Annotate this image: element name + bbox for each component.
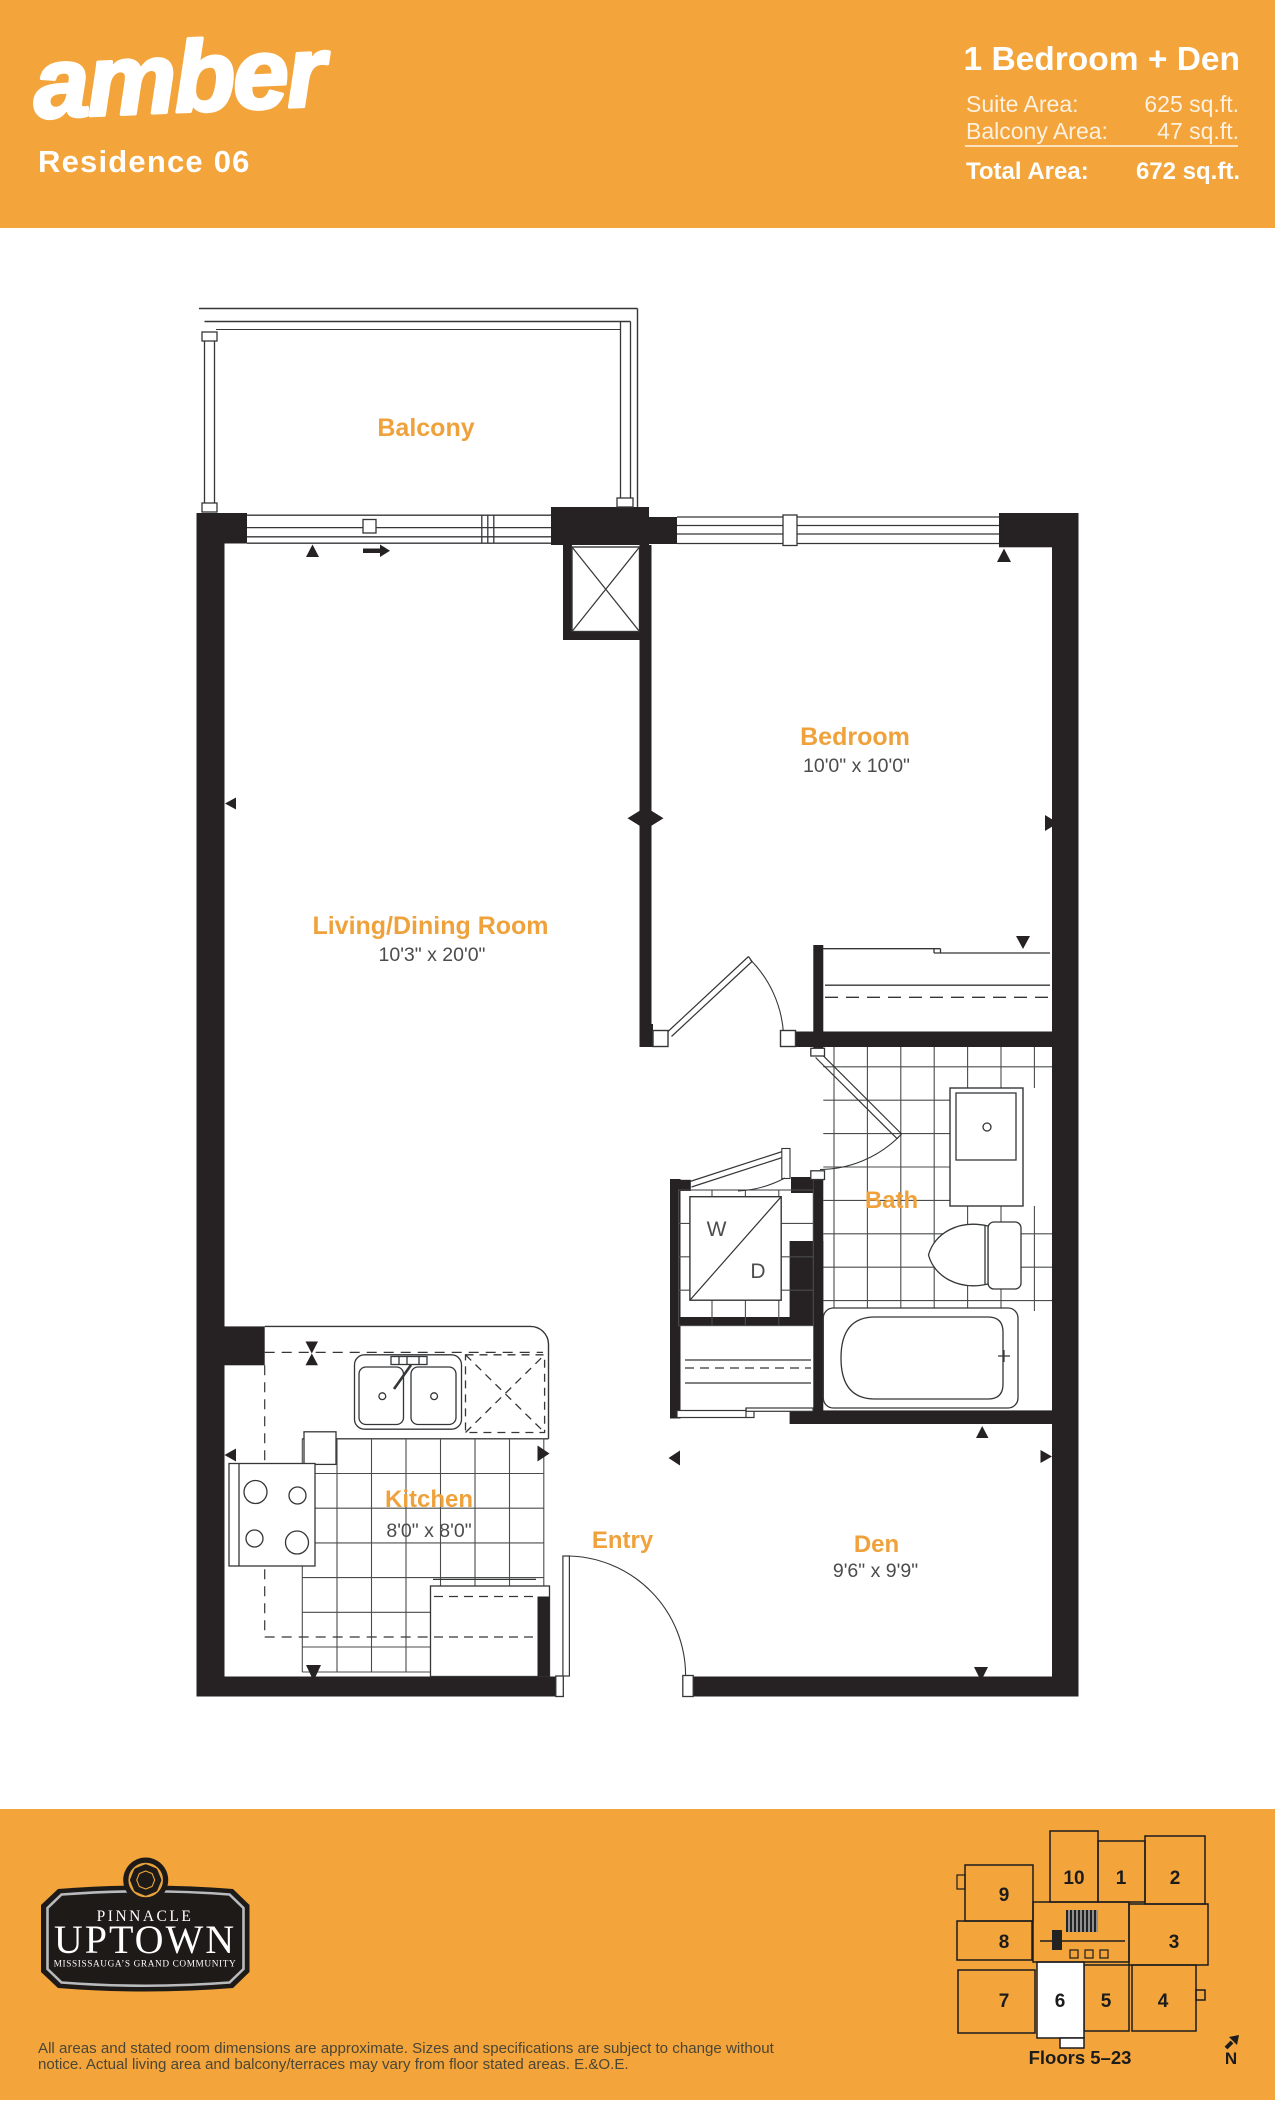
svg-text:D: D (750, 1260, 765, 1283)
svg-text:MISSISSAUGA’S GRAND COMMUNITY: MISSISSAUGA’S GRAND COMMUNITY (54, 1960, 237, 1970)
svg-text:UPTOWN: UPTOWN (54, 1917, 236, 1962)
svg-text:Living/Dining Room: Living/Dining Room (312, 912, 548, 940)
svg-text:Floors 5–23: Floors 5–23 (1029, 2047, 1132, 2068)
svg-text:W: W (707, 1218, 727, 1241)
svg-text:7: 7 (999, 1991, 1010, 2012)
svg-text:Den: Den (854, 1531, 899, 1558)
svg-text:672 sq.ft.: 672 sq.ft. (1136, 158, 1240, 185)
svg-text:Residence 06: Residence 06 (38, 144, 251, 179)
svg-text:3: 3 (1169, 1932, 1180, 1953)
svg-text:amber: amber (31, 15, 333, 140)
svg-text:Balcony Area:: Balcony Area: (966, 118, 1108, 144)
svg-text:Balcony: Balcony (377, 414, 474, 442)
svg-text:Bath: Bath (865, 1187, 918, 1214)
svg-text:notice. Actual living area and: notice. Actual living area and balcony/t… (38, 2056, 629, 2073)
svg-text:8'0" x 8'0": 8'0" x 8'0" (386, 1520, 471, 1542)
svg-text:Kitchen: Kitchen (385, 1486, 473, 1513)
svg-text:1 Bedroom + Den: 1 Bedroom + Den (964, 41, 1240, 78)
svg-text:625 sq.ft.: 625 sq.ft. (1144, 91, 1239, 117)
svg-text:1: 1 (1116, 1868, 1127, 1889)
svg-text:All areas and stated room dime: All areas and stated room dimensions are… (38, 2040, 775, 2057)
svg-text:Total Area:: Total Area: (966, 158, 1089, 185)
svg-text:9: 9 (999, 1885, 1010, 1906)
svg-text:4: 4 (1158, 1991, 1169, 2012)
svg-text:10: 10 (1063, 1868, 1084, 1889)
svg-text:6: 6 (1055, 1991, 1066, 2012)
svg-text:Entry: Entry (592, 1527, 654, 1554)
svg-text:47 sq.ft.: 47 sq.ft. (1157, 118, 1239, 144)
svg-text:N: N (1225, 2049, 1237, 2068)
svg-text:10'0" x 10'0": 10'0" x 10'0" (803, 755, 910, 777)
svg-text:5: 5 (1101, 1991, 1112, 2012)
svg-text:Bedroom: Bedroom (800, 723, 910, 751)
svg-text:2: 2 (1170, 1868, 1181, 1889)
svg-text:10'3" x 20'0": 10'3" x 20'0" (379, 944, 486, 966)
svg-text:8: 8 (999, 1932, 1010, 1953)
svg-text:Suite Area:: Suite Area: (966, 91, 1079, 117)
svg-text:9'6" x 9'9": 9'6" x 9'9" (833, 1560, 918, 1582)
